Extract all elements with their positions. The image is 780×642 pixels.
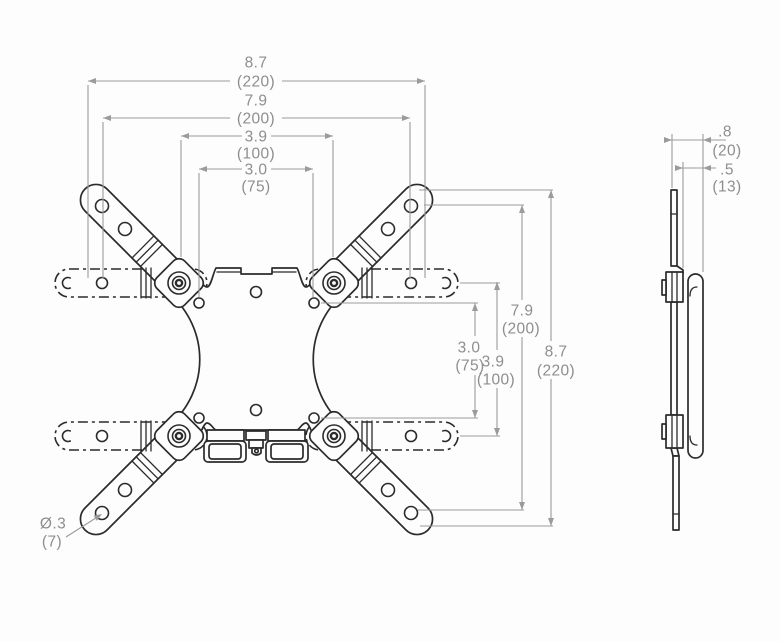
technical-drawing-canvas: 8.7 (220) 7.9 (200) 3.9 (100) 3.0 (75) 3…	[0, 0, 780, 642]
dim-top-220-mm: (220)	[237, 74, 275, 91]
dim-side-20-in: .8	[718, 124, 732, 141]
dim-right-200-in: 7.9	[511, 303, 534, 320]
dim-right-100-in: 3.9	[482, 354, 505, 371]
dim-top-100-mm: (100)	[237, 146, 275, 163]
dim-right-75-in: 3.0	[458, 340, 481, 357]
dim-top-200-in: 7.9	[245, 93, 268, 110]
wall-plate-profile	[671, 190, 683, 530]
hole-callout-diameter-in: Ø.3	[40, 516, 66, 533]
dim-right-220-mm: (220)	[537, 363, 575, 380]
hole-callout-diameter-mm: (7)	[42, 534, 62, 551]
hook-block-top	[662, 272, 683, 302]
clamp-right	[266, 430, 308, 462]
dim-side-13-in: .5	[720, 162, 734, 179]
dim-right-100-mm: (100)	[477, 372, 515, 389]
dim-side-20-mm: (20)	[712, 143, 741, 160]
front-view	[55, 184, 458, 534]
hook-block-bottom	[662, 415, 683, 448]
vesa-mount-drawing: 8.7 (220) 7.9 (200) 3.9 (100) 3.0 (75) 3…	[0, 0, 780, 642]
dim-top-75-in: 3.0	[245, 162, 268, 179]
clamp-left	[204, 430, 246, 462]
dim-side-13-mm: (13)	[712, 179, 741, 196]
dim-right-220-in: 8.7	[545, 344, 568, 361]
dim-top-220-in: 8.7	[245, 55, 268, 72]
dim-top-75-mm: (75)	[241, 179, 270, 196]
dim-right-200-mm: (200)	[502, 321, 540, 338]
release-latch	[246, 431, 266, 455]
dim-top-200-mm: (200)	[237, 111, 275, 128]
rail-profile	[688, 274, 703, 458]
dim-top-100-in: 3.9	[245, 129, 268, 146]
